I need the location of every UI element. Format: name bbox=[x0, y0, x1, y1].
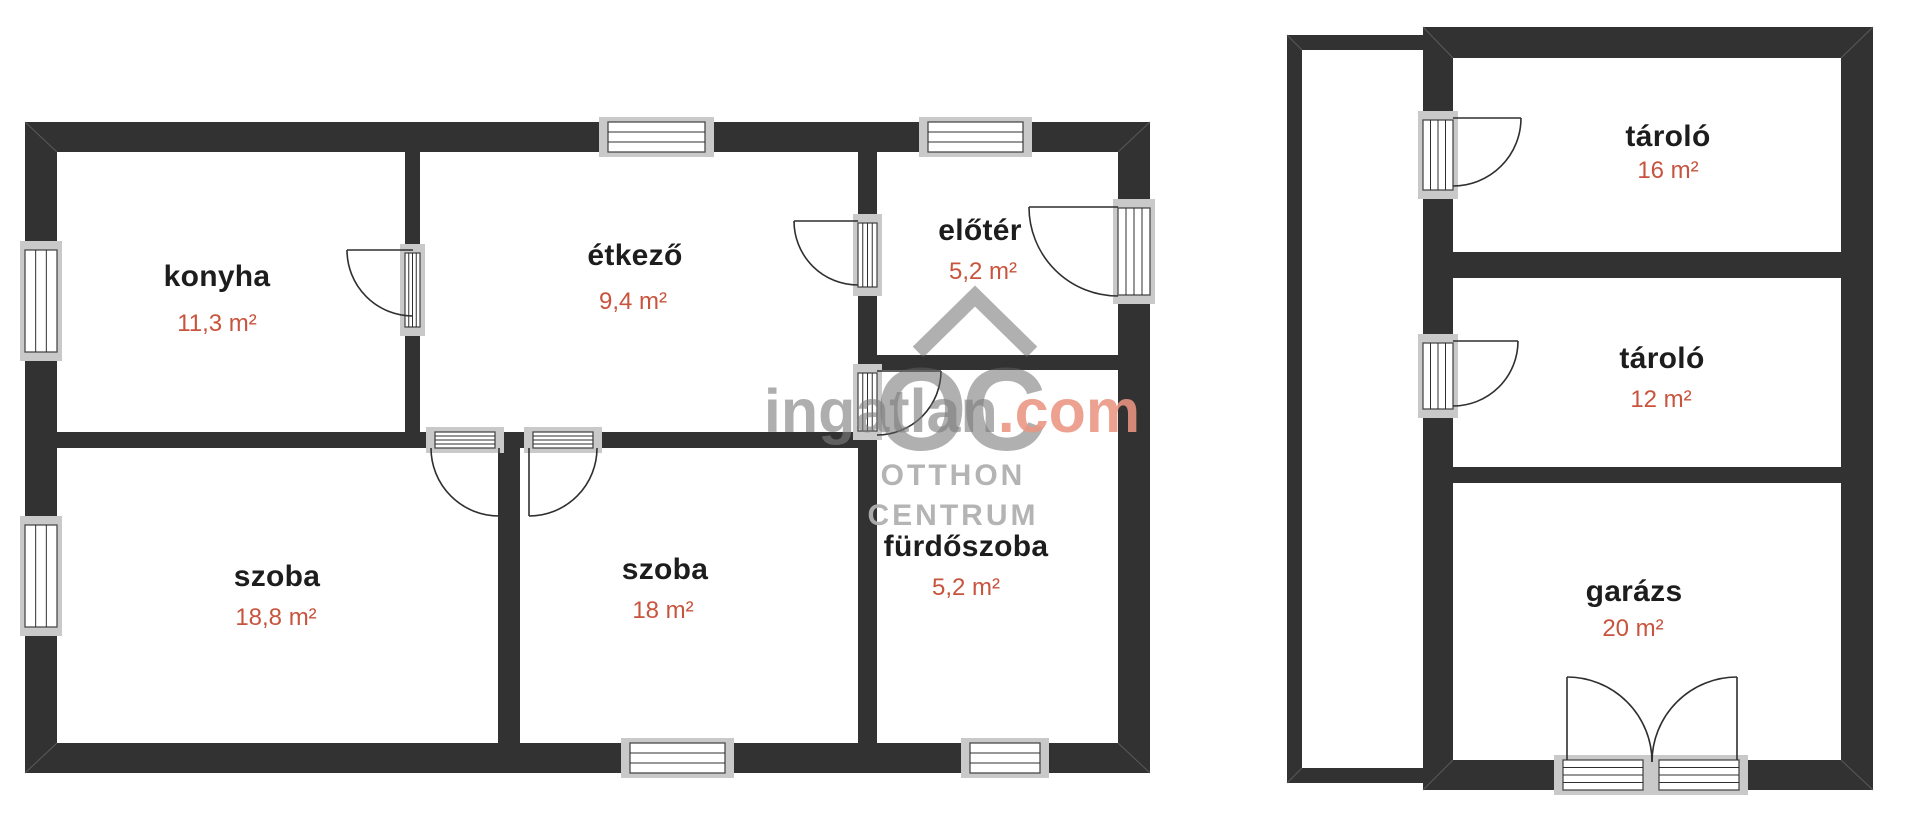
door-swing-arc bbox=[1453, 341, 1518, 406]
door-swing-arc bbox=[431, 448, 499, 516]
room-name-eloter: előtér bbox=[938, 214, 1022, 248]
wall bbox=[1841, 27, 1873, 790]
brand-watermark-domain: .com bbox=[998, 377, 1140, 445]
room-name-szoba-1: szoba bbox=[234, 560, 321, 594]
window-pane bbox=[25, 525, 57, 627]
room-area-tarolo-2: 12 m² bbox=[1630, 386, 1691, 414]
room-area-konyha: 11,3 m² bbox=[177, 310, 257, 338]
wall bbox=[1287, 768, 1423, 783]
wall bbox=[1453, 252, 1841, 278]
centrum-watermark-line: CENTRUM bbox=[868, 499, 1039, 533]
otthon-watermark-line: OTTHON bbox=[881, 459, 1026, 493]
window-pane bbox=[970, 743, 1040, 773]
room-area-garazs: 20 m² bbox=[1602, 615, 1663, 643]
wall bbox=[1423, 27, 1873, 58]
window-pane bbox=[608, 122, 705, 152]
floor-plan: konyha 11,3 m² étkező 9,4 m² előtér 5,2 … bbox=[0, 0, 1920, 819]
room-name-szoba-2: szoba bbox=[622, 553, 709, 587]
window-pane bbox=[25, 250, 57, 352]
door-swing-arc bbox=[529, 448, 597, 516]
room-area-szoba-2: 18 m² bbox=[632, 597, 693, 625]
window-pane bbox=[630, 743, 725, 773]
brand-watermark: ingatlan.com bbox=[764, 376, 1140, 446]
wall bbox=[1287, 35, 1423, 50]
room-name-garazs: garázs bbox=[1586, 575, 1683, 609]
room-area-furdoszoba: 5,2 m² bbox=[932, 574, 1000, 602]
room-name-tarolo-1: tároló bbox=[1625, 120, 1710, 154]
room-name-furdoszoba: fürdőszoba bbox=[884, 530, 1049, 564]
garage-door-swing-arc bbox=[1567, 677, 1652, 762]
room-area-etkezo: 9,4 m² bbox=[599, 288, 667, 316]
wall bbox=[1453, 467, 1841, 483]
door-swing-arc bbox=[794, 221, 858, 285]
garage-door-swing-arc bbox=[1652, 677, 1737, 762]
room-name-etkezo: étkező bbox=[587, 239, 682, 273]
wall bbox=[1287, 35, 1302, 783]
window-pane bbox=[928, 122, 1023, 152]
room-name-tarolo-2: tároló bbox=[1619, 342, 1704, 376]
door-swing-arc bbox=[1453, 118, 1521, 186]
room-area-tarolo-1: 16 m² bbox=[1637, 157, 1698, 185]
brand-watermark-name: ingatlan bbox=[764, 377, 998, 445]
wall bbox=[498, 448, 520, 743]
wall bbox=[25, 122, 57, 773]
room-name-konyha: konyha bbox=[164, 260, 271, 294]
room-area-szoba-1: 18,8 m² bbox=[235, 604, 316, 632]
